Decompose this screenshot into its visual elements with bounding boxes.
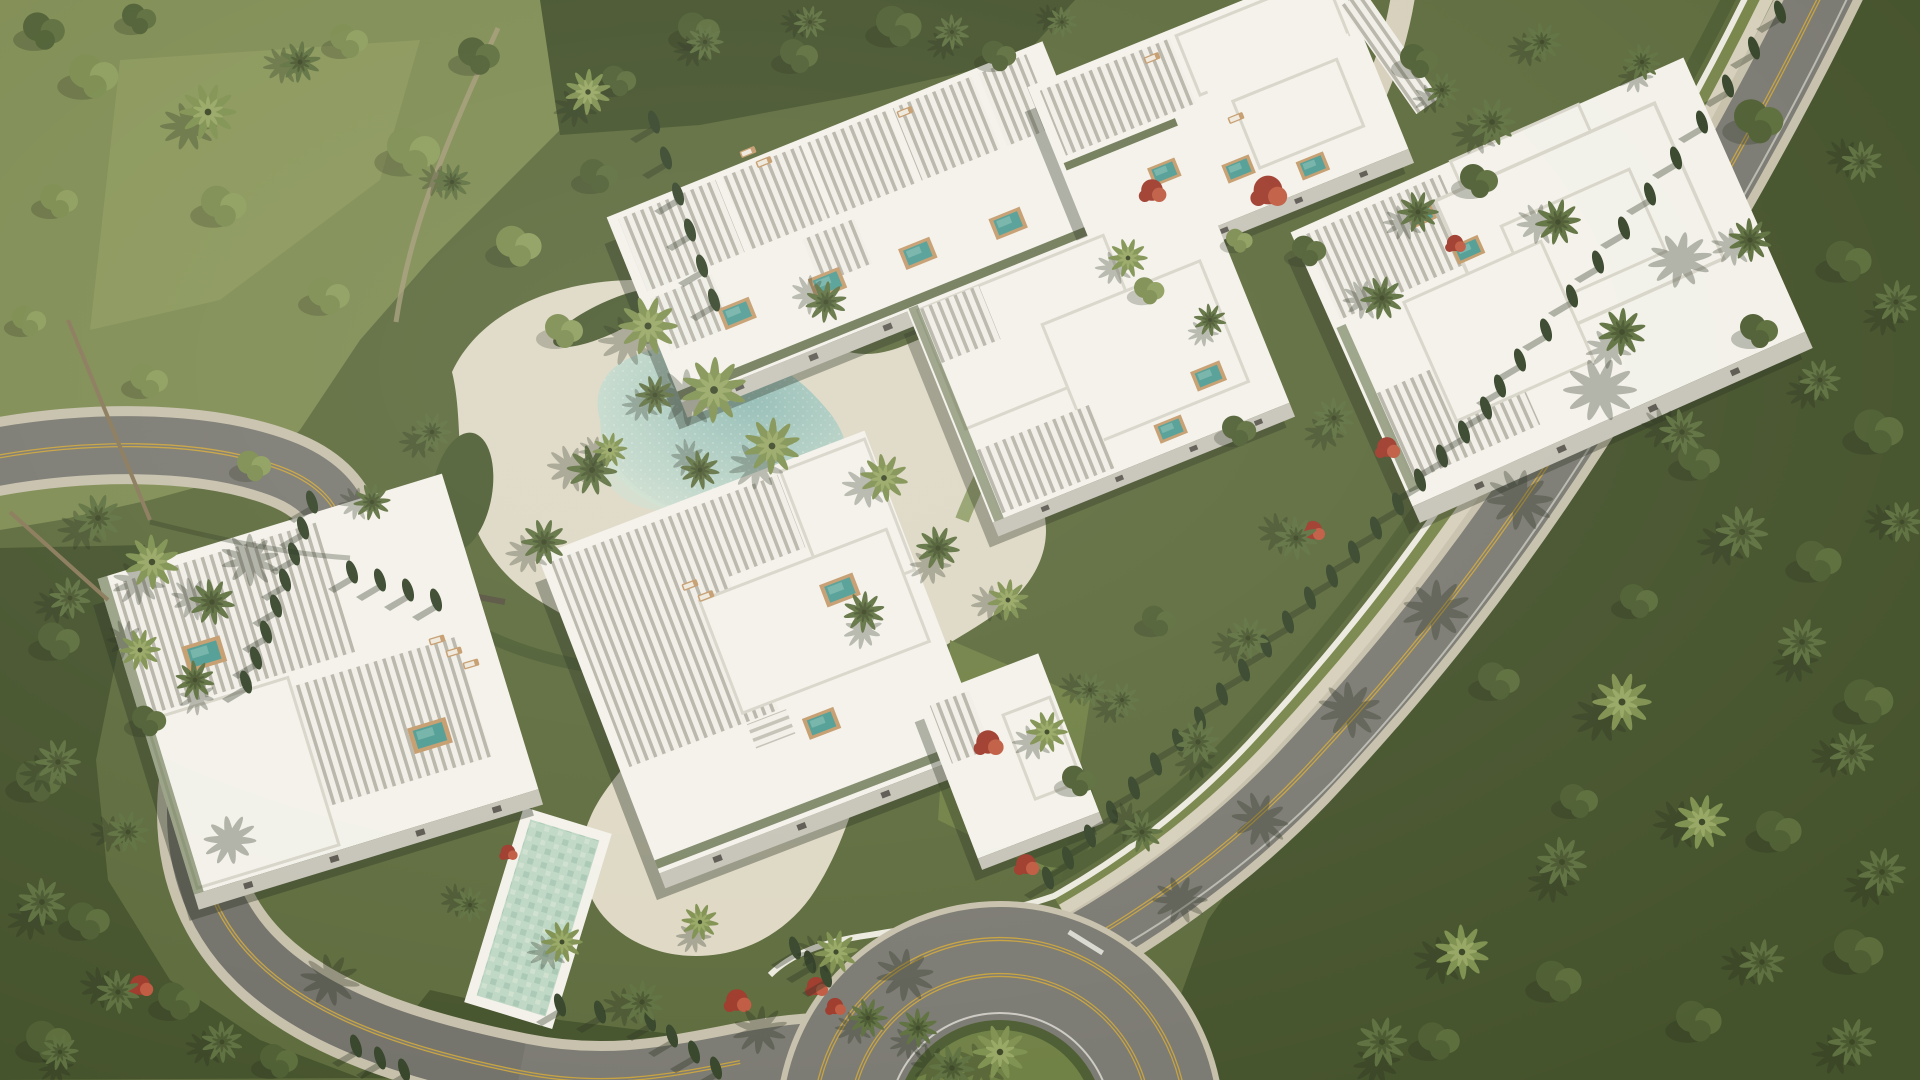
scene-svg <box>0 0 1920 1080</box>
sunlight-glare-overlay <box>0 0 1920 1080</box>
aerial-render-canvas <box>0 0 1920 1080</box>
